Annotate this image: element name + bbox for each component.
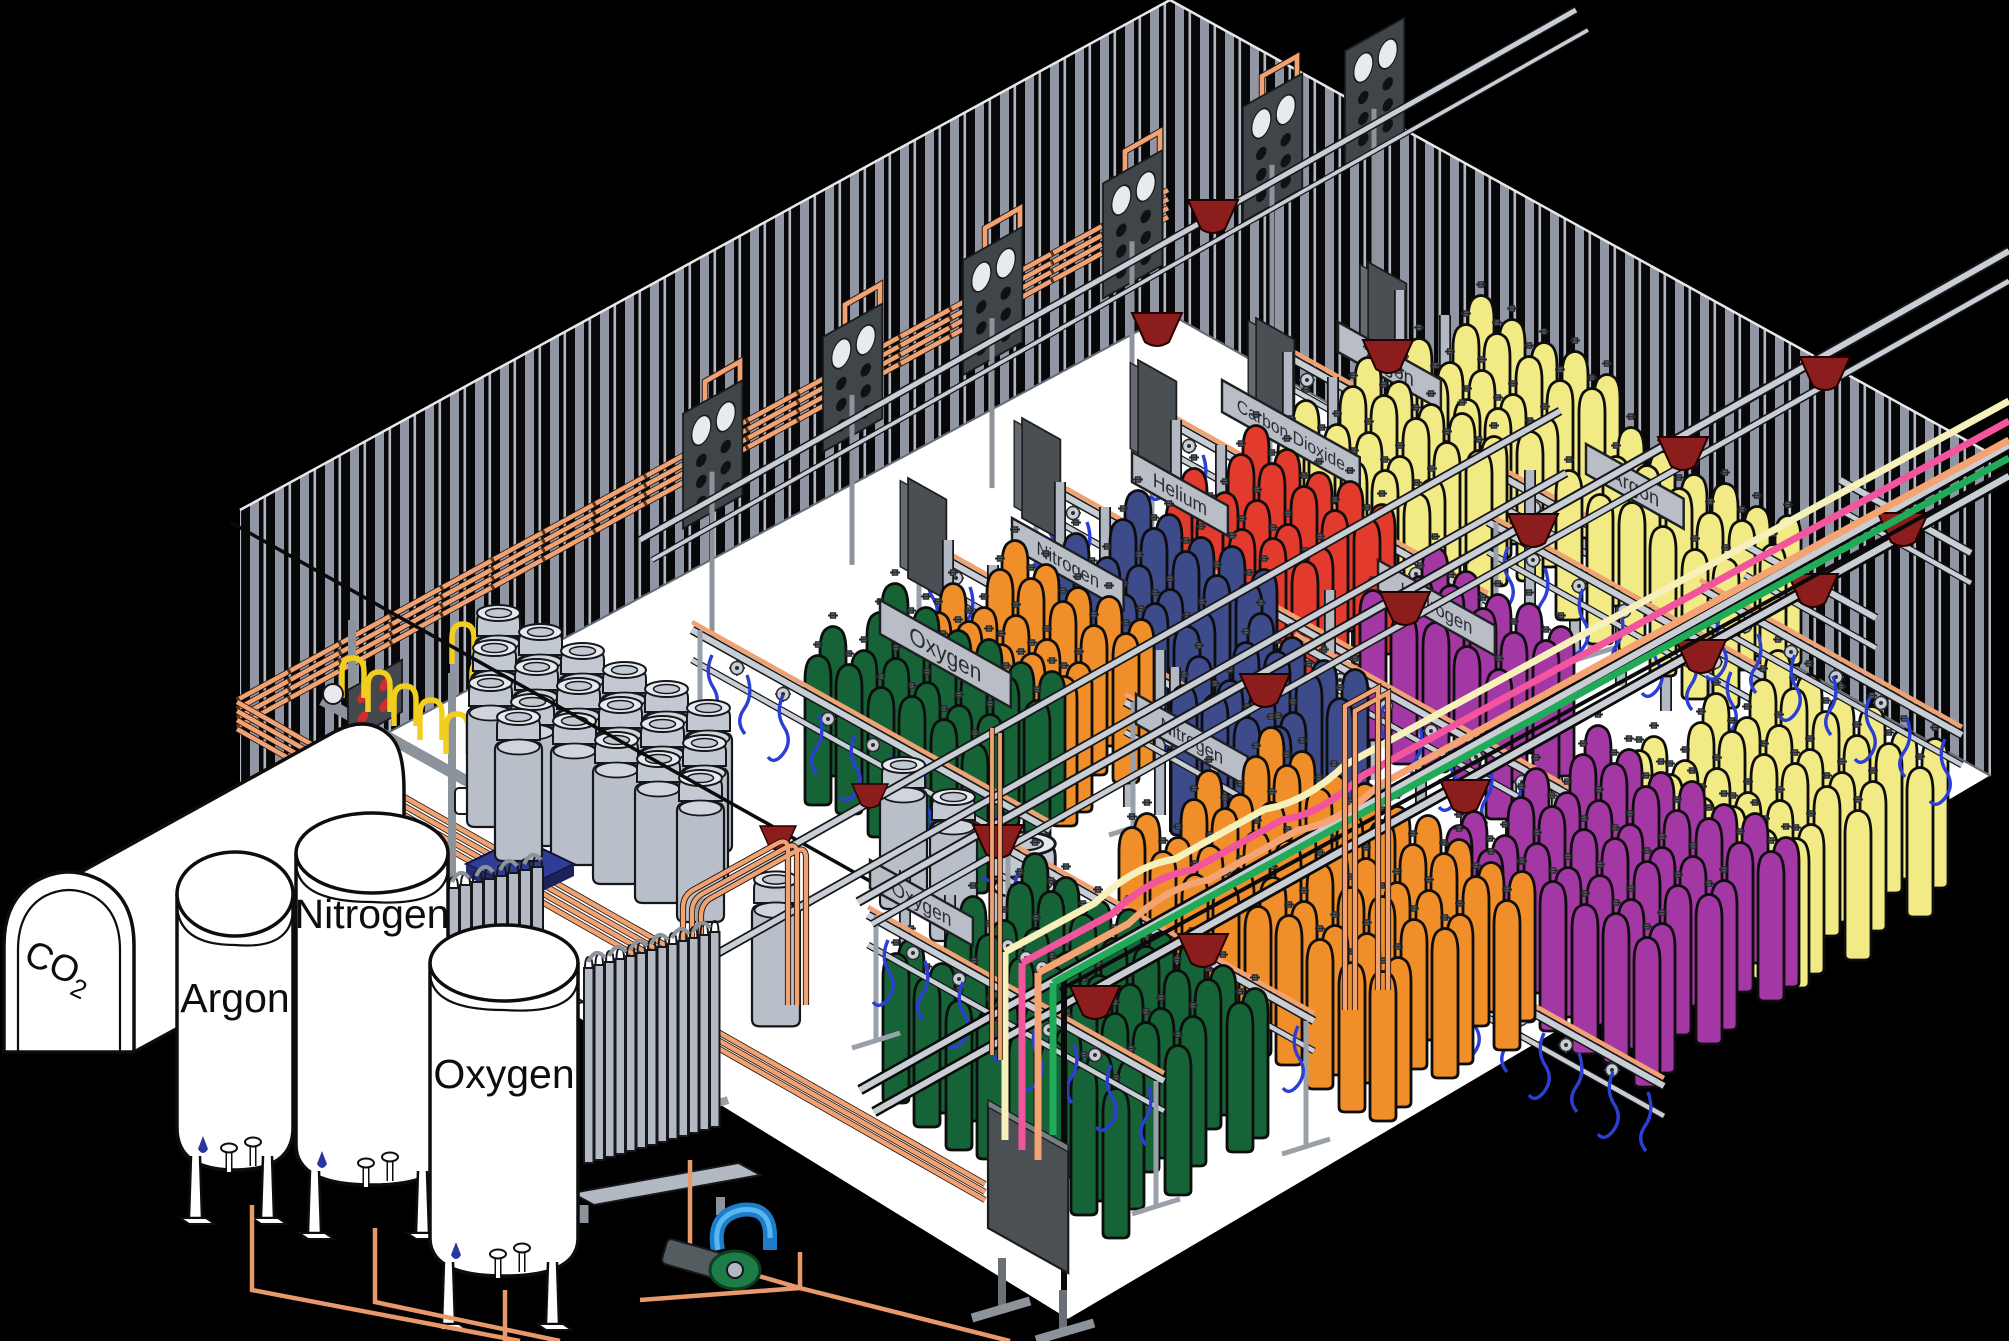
svg-text:Oxygen: Oxygen — [433, 1051, 574, 1097]
svg-text:Argon: Argon — [180, 975, 289, 1021]
svg-text:Nitrogen: Nitrogen — [295, 891, 450, 937]
